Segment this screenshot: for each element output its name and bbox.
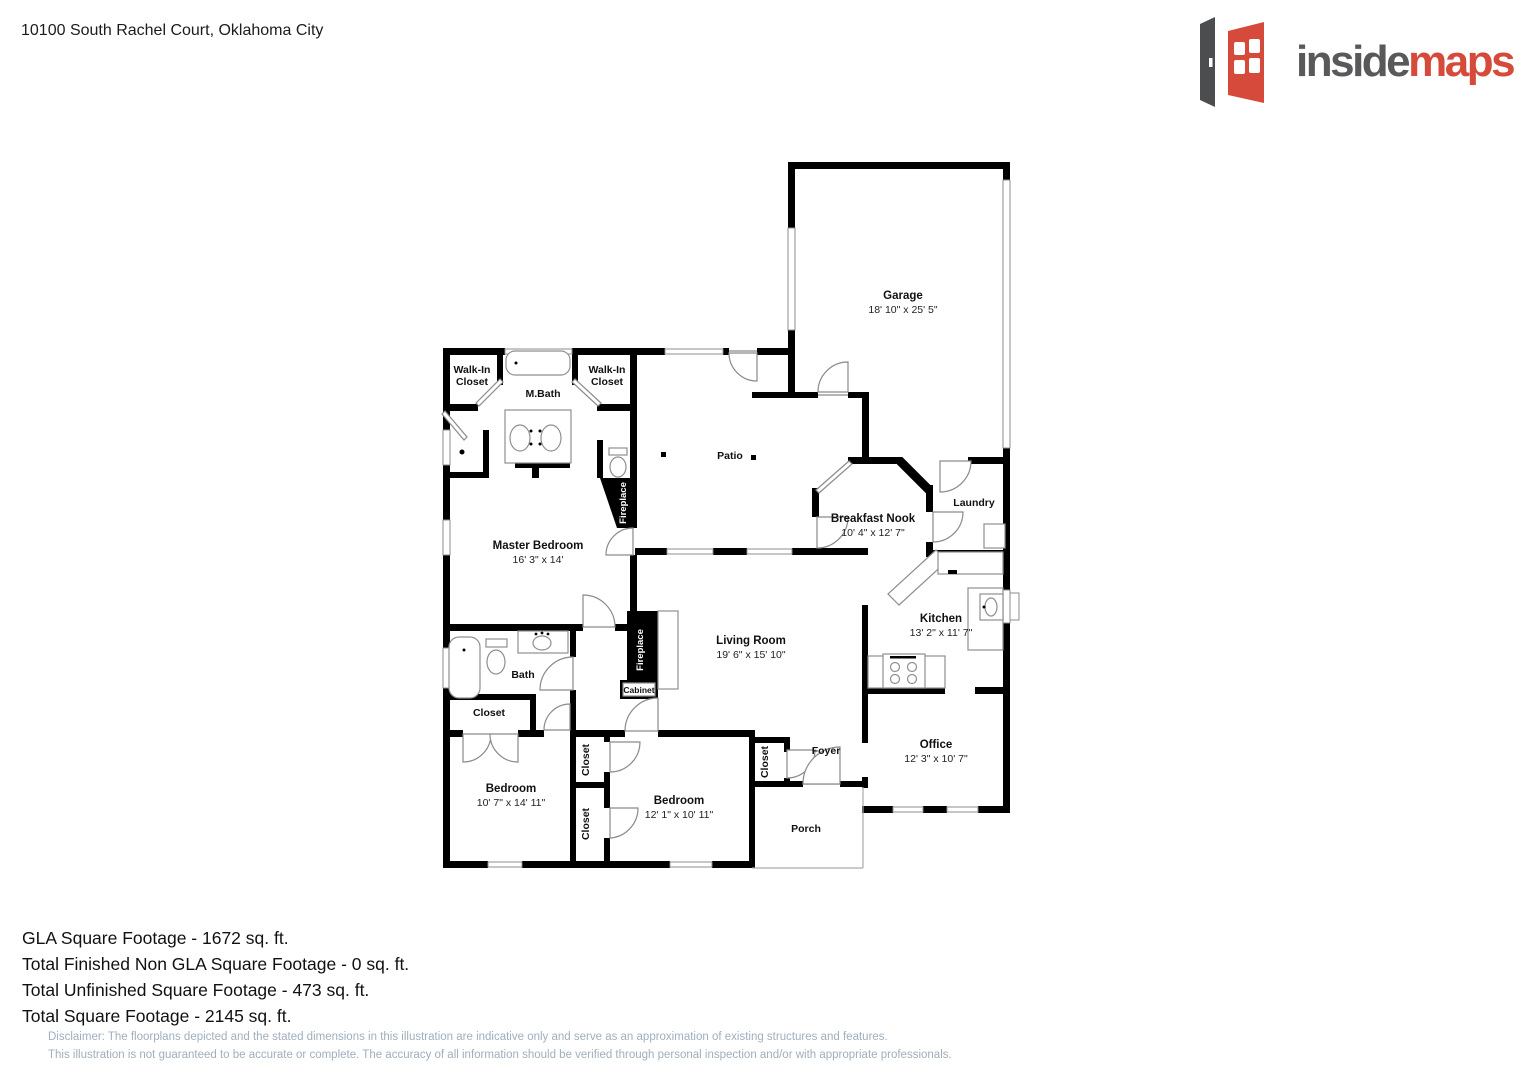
hall-closet-door-right-arc xyxy=(490,734,518,762)
hearth-outline xyxy=(658,611,678,689)
garage-window xyxy=(788,228,795,330)
toilet-bowl-icon xyxy=(487,650,505,674)
disclaimer-text: Disclaimer: The floorplans depicted and … xyxy=(48,1029,952,1064)
master-bedroom-label: Master Bedroom xyxy=(493,540,584,552)
bathtub-icon xyxy=(449,637,480,698)
kitchen-window xyxy=(1003,590,1010,623)
unfinished-sqft-line: Total Unfinished Square Footage - 473 sq… xyxy=(22,977,409,1003)
burner-icon xyxy=(891,675,900,684)
foyer-closet-label: Closet xyxy=(759,745,771,778)
burner-icon xyxy=(908,675,917,684)
office-dims: 12' 3" x 10' 7" xyxy=(904,753,968,765)
shower-drain-icon xyxy=(460,450,465,455)
garage-door-arc xyxy=(818,362,848,392)
disclaimer-line-2: This illustration is not guaranteed to b… xyxy=(48,1047,952,1065)
master-bedroom-dims: 16' 3" x 14' xyxy=(513,554,564,566)
toilet-tank-icon xyxy=(486,639,507,647)
bedroom-left-dims: 10' 7" x 14' 11" xyxy=(477,797,546,809)
garage-dims: 18' 10" x 25' 5" xyxy=(868,304,938,316)
bedroom1-window xyxy=(488,862,522,867)
patio-post xyxy=(661,452,666,457)
bath-door-arc xyxy=(540,657,573,690)
master-living-door-arc xyxy=(606,528,633,555)
garage-door-panel xyxy=(1003,180,1010,448)
kitchen-dims: 13' 2" x 11' 7" xyxy=(910,627,973,639)
kitchen-label: Kitchen xyxy=(920,613,962,625)
bath-label: Bath xyxy=(511,669,534,681)
master-window-1 xyxy=(443,430,450,465)
hall-closet-label: Closet xyxy=(473,707,506,719)
breakfast-nook-dims: 10' 4" x 12' 7" xyxy=(841,527,905,539)
bedroom-middle-dims: 12' 1" x 10' 11" xyxy=(645,809,714,821)
laundry-door-arc xyxy=(933,512,963,542)
laundry-label: Laundry xyxy=(953,497,995,509)
kitchen-counter-top xyxy=(938,552,1003,574)
living-room-label: Living Room xyxy=(716,635,786,647)
porch-label: Porch xyxy=(791,823,821,835)
cabinet-label: Cabinet xyxy=(623,685,654,695)
svg-text:Closet: Closet xyxy=(456,376,489,388)
kitchen-window-bay xyxy=(1010,593,1019,620)
burner-icon xyxy=(891,663,900,672)
nook-open-door-leaf xyxy=(816,461,852,493)
square-footage-summary: GLA Square Footage - 1672 sq. ft. Total … xyxy=(22,925,409,1029)
total-sqft-line: Total Square Footage - 2145 sq. ft. xyxy=(22,1003,409,1029)
walkin-closet-right-label: Walk-In xyxy=(589,364,626,376)
floorplan-page: 10100 South Rachel Court, Oklahoma City … xyxy=(0,0,1527,1080)
sink-icon xyxy=(510,425,530,451)
living-window-1 xyxy=(667,549,713,554)
bedroom-middle-label: Bedroom xyxy=(654,795,704,807)
garage-laundry-door-arc xyxy=(940,461,971,492)
patio-door-arc xyxy=(729,353,757,381)
master-entry-door-arc xyxy=(583,595,615,627)
closet-a-label: Closet xyxy=(580,743,592,776)
washer-dryer-icon xyxy=(984,524,1005,548)
office-window-1 xyxy=(893,807,923,812)
floorplan-drawing: Garage 18' 10" x 25' 5" Patio Walk-In Cl… xyxy=(0,0,1527,1080)
bedroom2-window xyxy=(670,862,712,867)
master-toilet-bowl xyxy=(610,457,626,477)
hall-closet-door-left-arc xyxy=(463,734,491,762)
master-fireplace-label: Fireplace xyxy=(618,482,629,524)
mbath-label: M.Bath xyxy=(526,388,561,400)
living-fireplace-label: Fireplace xyxy=(635,629,646,671)
bath-sink-icon xyxy=(533,636,551,650)
garage-label: Garage xyxy=(883,290,923,302)
closet-b-door-arc xyxy=(610,808,638,838)
walkin-closet-left-label: Walk-In xyxy=(454,364,491,376)
breakfast-nook-label: Breakfast Nook xyxy=(831,513,916,525)
master-window-2 xyxy=(443,520,450,555)
burner-icon xyxy=(908,663,917,672)
stove-icon xyxy=(883,654,925,688)
closet-a-door-arc xyxy=(610,742,640,772)
svg-text:Closet: Closet xyxy=(591,376,624,388)
foyer-label: Foyer xyxy=(812,745,841,757)
patio-top-window xyxy=(665,349,723,354)
sink-icon xyxy=(541,425,561,451)
master-toilet-icon xyxy=(609,448,627,455)
patio-label: Patio xyxy=(717,450,743,462)
bedroom2-entry-door-arc xyxy=(625,698,658,731)
closet-b-label: Closet xyxy=(580,807,592,840)
bedroom-left-label: Bedroom xyxy=(486,783,536,795)
gla-sqft-line: GLA Square Footage - 1672 sq. ft. xyxy=(22,925,409,951)
patio-post xyxy=(751,455,756,460)
living-room-dims: 19' 6" x 15' 10" xyxy=(716,649,786,661)
bedroom1-door-arc xyxy=(544,704,570,730)
office-window-2 xyxy=(947,807,978,812)
living-window-2 xyxy=(747,549,792,554)
non-gla-sqft-line: Total Finished Non GLA Square Footage - … xyxy=(22,951,409,977)
office-label: Office xyxy=(920,739,953,751)
disclaimer-line-1: Disclaimer: The floorplans depicted and … xyxy=(48,1029,952,1047)
